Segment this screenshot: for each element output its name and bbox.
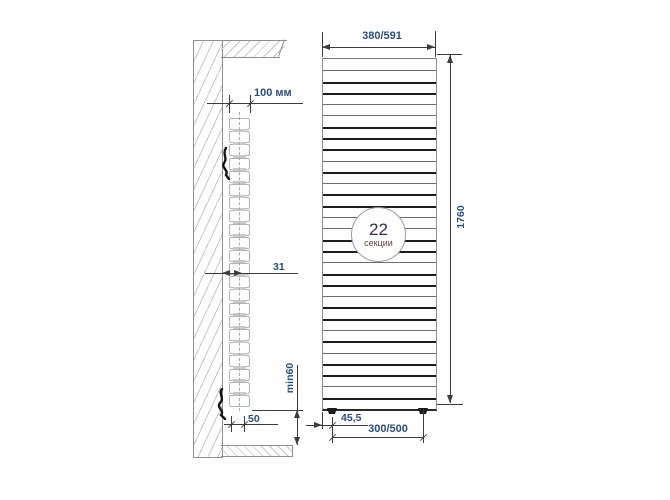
radiator-band-line (323, 115, 436, 116)
section-count-badge: 22 секции (351, 207, 406, 262)
radiator-centerline (239, 112, 240, 411)
dim-label-depth: 100 мм (254, 87, 292, 99)
dim-line-height (450, 55, 451, 403)
radiator-band-line (323, 183, 436, 184)
radiator-band-line (323, 285, 436, 287)
section-count-unit: секции (364, 238, 393, 249)
section-count-value: 22 (369, 221, 388, 238)
radiator-band-line (323, 127, 436, 129)
radiator-band-line (323, 296, 436, 297)
dim-arrow-up (447, 55, 453, 63)
radiator-band-line (323, 93, 436, 95)
radiator-band-line (323, 330, 436, 331)
dim-line-width (322, 47, 435, 48)
radiator-band-line (323, 375, 436, 377)
dim-arrow-right (234, 270, 242, 276)
radiator-band-line (323, 319, 436, 321)
ext-line (437, 404, 463, 405)
dim-line-depth (207, 103, 303, 104)
ext-line (332, 417, 333, 443)
radiator-band-line (323, 262, 436, 263)
dim-line-wall-gap (205, 273, 298, 274)
wall-bracket-upper (219, 147, 233, 180)
dim-arrow-left (222, 270, 230, 276)
radiator-foot-left (327, 408, 337, 414)
wall-bracket-lower (214, 388, 230, 420)
radiator-band-line (323, 138, 436, 140)
radiator-band-line (323, 149, 436, 151)
radiator-band-line (323, 194, 436, 196)
dim-line-floor-clearance (297, 365, 298, 445)
dim-label-width: 380/591 (352, 30, 412, 42)
ext-line (435, 31, 436, 57)
dim-arrow-up (294, 410, 300, 418)
floor-section (221, 445, 293, 457)
dim-label-wall-gap: 31 (273, 261, 285, 273)
dim-arrow-right (427, 44, 435, 50)
radiator-band-line (323, 172, 436, 174)
radiator-band-line (323, 341, 436, 343)
dim-label-connection: 300/500 (356, 423, 420, 435)
dim-arrow-left (322, 44, 330, 50)
radiator-band-line (323, 307, 436, 309)
dim-arrow-down (294, 437, 300, 445)
radiator-dimensions-diagram: 100 мм 31 min60 50 22 секции 380/591 176… (0, 0, 670, 500)
radiator-band-line (323, 398, 436, 400)
radiator-band-line (323, 274, 436, 276)
radiator-band-line (323, 353, 436, 354)
radiator-band-line (323, 364, 436, 366)
dim-label-floor-clearance: min60 (284, 360, 296, 396)
dim-line-connection (332, 437, 423, 438)
dim-label-bracket: 50 (248, 413, 260, 425)
radiator-band-line (323, 161, 436, 162)
dim-arrow-down (447, 395, 453, 403)
dim-arrow-right (314, 422, 322, 428)
dim-label-height: 1760 (455, 197, 467, 237)
radiator-band-line (323, 104, 436, 105)
radiator-band-line (323, 82, 436, 84)
ext-line (322, 412, 323, 429)
radiator-band-line (323, 70, 436, 71)
radiator-band-line (323, 386, 436, 387)
